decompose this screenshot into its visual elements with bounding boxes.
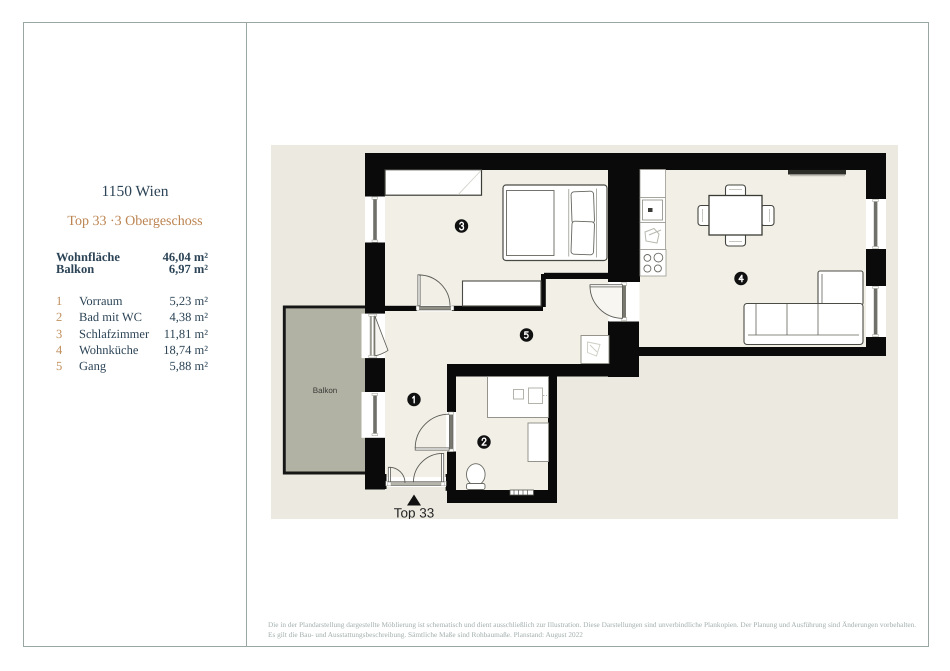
svg-text:Top 33: Top 33 bbox=[394, 506, 435, 520]
svg-text:Balkon: Balkon bbox=[313, 386, 337, 395]
